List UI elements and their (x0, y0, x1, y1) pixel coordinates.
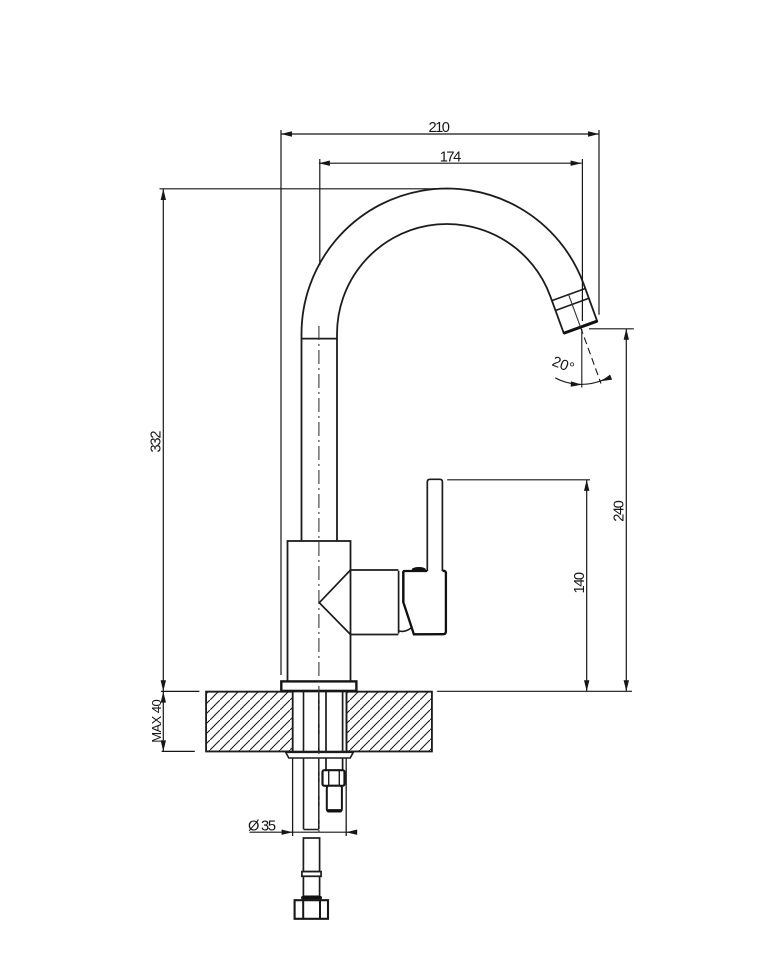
svg-text:210: 210 (428, 120, 450, 136)
svg-text:MAX 40: MAX 40 (149, 699, 164, 743)
svg-text:20°: 20° (550, 354, 576, 377)
svg-text:Ø 35: Ø 35 (248, 819, 276, 835)
svg-text:174: 174 (440, 149, 462, 165)
svg-text:240: 240 (612, 500, 628, 522)
svg-text:332: 332 (148, 431, 164, 453)
svg-text:140: 140 (572, 572, 588, 594)
